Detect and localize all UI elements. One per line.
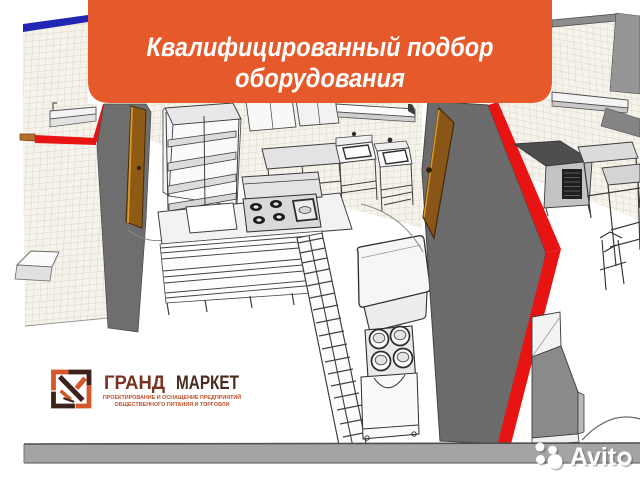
svg-text:Avit: Avit xyxy=(570,443,617,471)
svg-text:ОБЩЕСТВЕННОГО ПИТАНИЯ И ТОРГОВ: ОБЩЕСТВЕННОГО ПИТАНИЯ И ТОРГОВЛИ xyxy=(115,402,230,408)
svg-text:оборудования: оборудования xyxy=(235,63,405,93)
svg-text:МАРКЕТ: МАРКЕТ xyxy=(176,372,239,394)
svg-text:ГРАНД: ГРАНД xyxy=(104,372,165,394)
svg-text:Квалифицированный подбор: Квалифицированный подбор xyxy=(147,32,494,62)
svg-text:ПРОЕКТИРОВАНИЕ И ОСНАЩЕНИЕ ПРЕ: ПРОЕКТИРОВАНИЕ И ОСНАЩЕНИЕ ПРЕДПРИЯТИЙ xyxy=(103,393,241,401)
